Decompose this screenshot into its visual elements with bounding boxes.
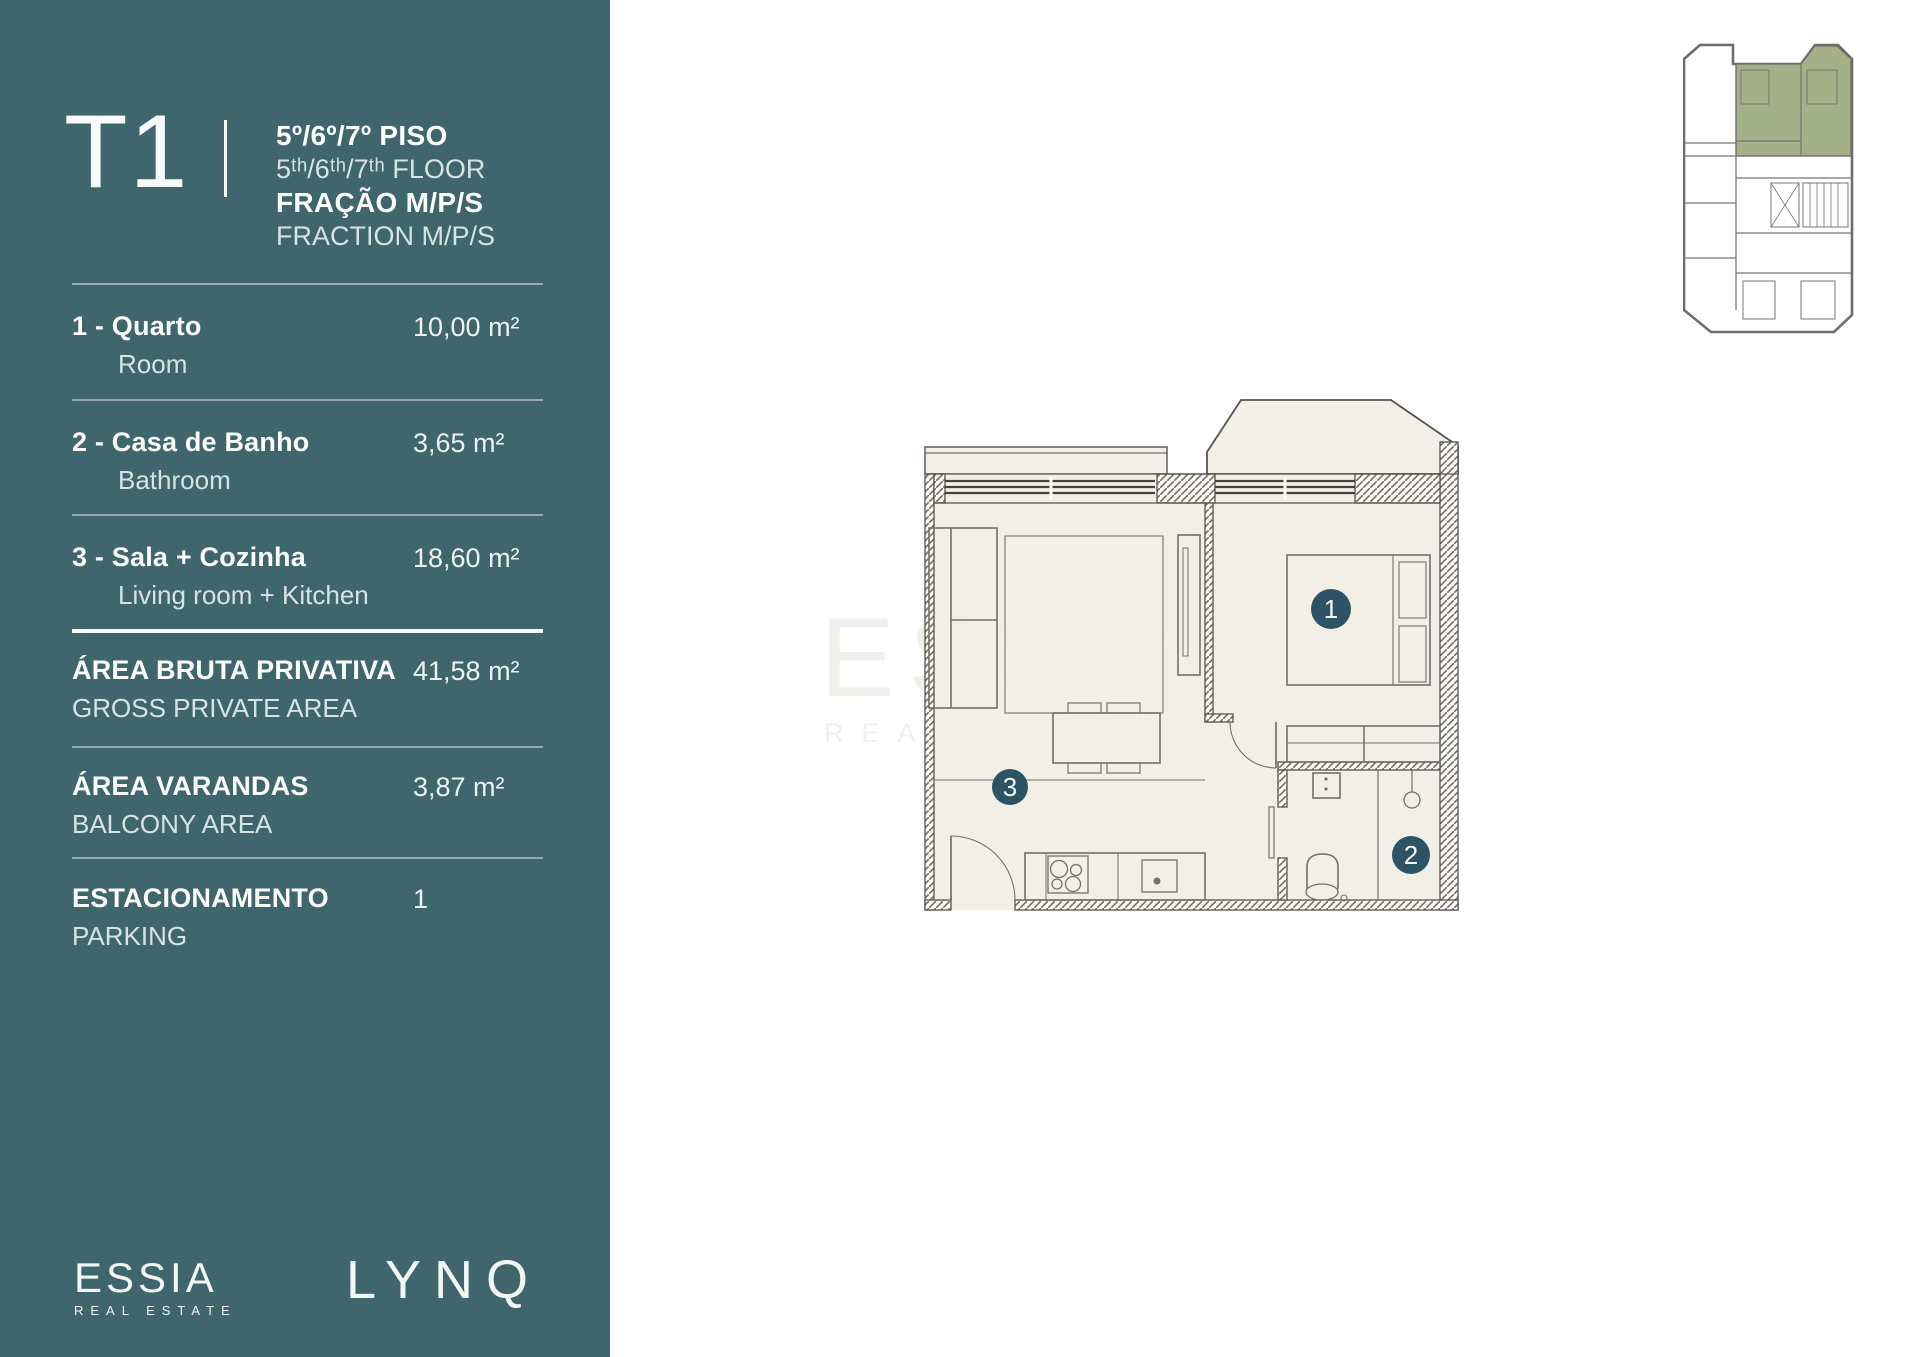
row-sublabel: BALCONY AREA bbox=[72, 809, 543, 840]
row-label: ESTACIONAMENTO bbox=[72, 883, 543, 914]
fraction-label-pt: FRAÇÃO M/P/S bbox=[276, 186, 495, 220]
badge-room: 1 bbox=[1324, 594, 1338, 624]
area-row: 3 - Sala + Cozinha Living room + Kitchen… bbox=[72, 542, 543, 611]
row-sublabel: GROSS PRIVATE AREA bbox=[72, 693, 543, 724]
key-plan bbox=[1683, 43, 1855, 337]
floor-plan-svg: 1 2 3 bbox=[915, 390, 1465, 942]
floor-fraction-header: 5º/6º/7º PISO 5ᵗʰ/6ᵗʰ/7ᵗʰ FLOOR FRAÇÃO M… bbox=[276, 119, 495, 253]
separator bbox=[72, 857, 543, 859]
row-sublabel: Living room + Kitchen bbox=[118, 580, 543, 611]
floor-label-pt: 5º/6º/7º PISO bbox=[276, 119, 495, 153]
badge-living: 3 bbox=[1003, 772, 1017, 802]
floor-plan: 1 2 3 bbox=[915, 390, 1465, 942]
floor-label-en: 5ᵗʰ/6ᵗʰ/7ᵗʰ FLOOR bbox=[276, 153, 495, 187]
separator bbox=[72, 283, 543, 285]
essia-logo-tagline: REAL ESTATE bbox=[74, 1303, 237, 1318]
area-row: ÁREA BRUTA PRIVATIVA GROSS PRIVATE AREA … bbox=[72, 655, 543, 724]
area-row: ÁREA VARANDAS BALCONY AREA 3,87 m² bbox=[72, 771, 543, 840]
separator bbox=[72, 514, 543, 516]
row-sublabel: Bathroom bbox=[118, 465, 543, 496]
separator bbox=[72, 746, 543, 748]
separator bbox=[72, 399, 543, 401]
row-value: 1 bbox=[413, 884, 428, 915]
fraction-label-en: FRACTION M/P/S bbox=[276, 220, 495, 254]
separator-strong bbox=[72, 629, 543, 633]
brochure-page: T1 5º/6º/7º PISO 5ᵗʰ/6ᵗʰ/7ᵗʰ FLOOR FRAÇÃ… bbox=[0, 0, 1920, 1357]
row-value: 3,65 m² bbox=[413, 428, 505, 459]
key-plan-svg bbox=[1683, 43, 1855, 337]
row-value: 10,00 m² bbox=[413, 312, 520, 343]
area-row: 2 - Casa de Banho Bathroom 3,65 m² bbox=[72, 427, 543, 496]
lynq-logo: LYNQ bbox=[346, 1252, 541, 1308]
badge-bathroom: 2 bbox=[1404, 840, 1418, 870]
area-row: 1 - Quarto Room 10,00 m² bbox=[72, 311, 543, 380]
essia-logo-text: ESSIA bbox=[74, 1256, 237, 1300]
row-value: 41,58 m² bbox=[413, 656, 520, 687]
header-divider bbox=[224, 120, 227, 197]
typology-title: T1 bbox=[64, 100, 189, 204]
row-value: 18,60 m² bbox=[413, 543, 520, 574]
area-row: ESTACIONAMENTO PARKING 1 bbox=[72, 883, 543, 952]
highlighted-unit bbox=[1736, 46, 1851, 156]
essia-logo: ESSIA REAL ESTATE bbox=[74, 1256, 237, 1318]
row-value: 3,87 m² bbox=[413, 772, 505, 803]
row-sublabel: Room bbox=[118, 349, 543, 380]
row-sublabel: PARKING bbox=[72, 921, 543, 952]
sidebar: T1 5º/6º/7º PISO 5ᵗʰ/6ᵗʰ/7ᵗʰ FLOOR FRAÇÃ… bbox=[0, 0, 610, 1357]
